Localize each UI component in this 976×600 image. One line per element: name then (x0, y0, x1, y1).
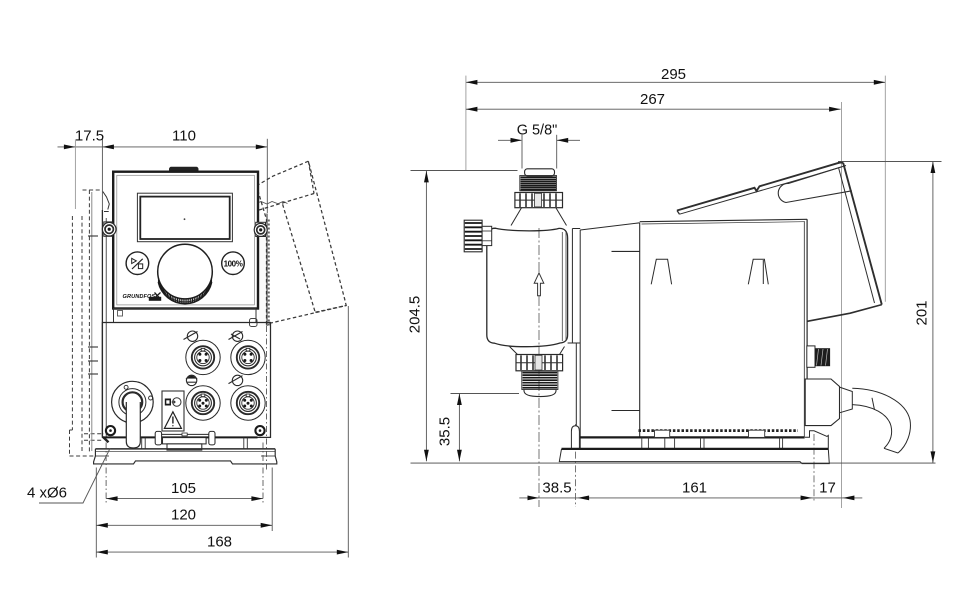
svg-text:120: 120 (171, 507, 196, 524)
svg-text:161: 161 (682, 479, 707, 496)
svg-text:17.5: 17.5 (75, 128, 104, 145)
svg-text:G 5/8": G 5/8" (517, 123, 558, 139)
svg-text:4 xØ6: 4 xØ6 (27, 485, 67, 502)
svg-text:204.5: 204.5 (407, 296, 424, 334)
svg-text:110: 110 (172, 128, 196, 145)
svg-text:168: 168 (207, 534, 232, 551)
svg-text:267: 267 (640, 91, 665, 108)
svg-text:38.5: 38.5 (542, 479, 571, 496)
svg-text:35.5: 35.5 (437, 417, 454, 446)
svg-text:17: 17 (819, 479, 836, 496)
svg-text:105: 105 (171, 480, 196, 497)
svg-text:295: 295 (661, 66, 686, 83)
svg-text:100%: 100% (224, 260, 243, 269)
svg-text:201: 201 (914, 300, 931, 325)
